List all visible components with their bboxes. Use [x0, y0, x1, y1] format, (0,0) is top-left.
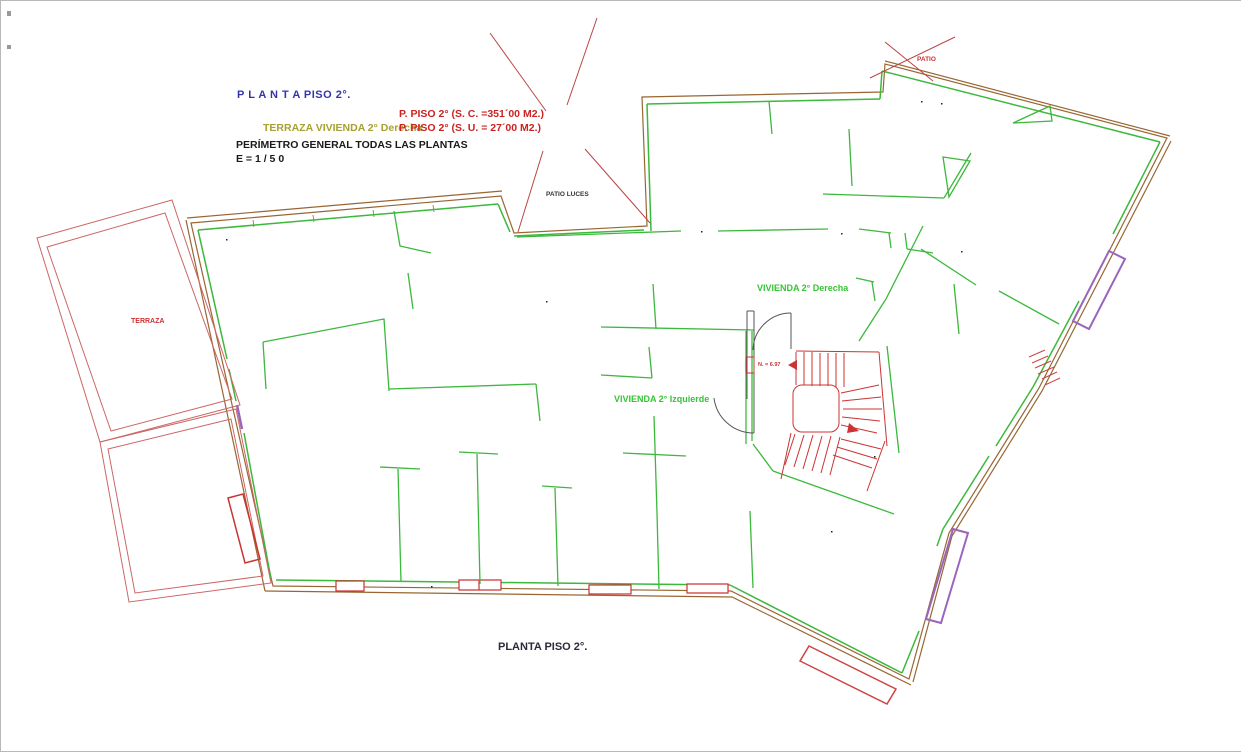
floor-plan-drawing — [1, 1, 1241, 751]
door-arc-upper — [753, 313, 791, 350]
patio-cross-lines — [870, 37, 955, 81]
stair-level-label: N. = 6.97 — [758, 363, 780, 369]
area-useful-note: P. PISO 2° (S. U. = 27´00 M2.) — [399, 123, 541, 134]
stair-well — [793, 385, 839, 432]
perimeter-note: PERÍMETRO GENERAL TODAS LAS PLANTAS — [236, 140, 468, 151]
vivienda-derecha-label: VIVIENDA 2° Derecha — [757, 284, 848, 293]
footer-label: PLANTA PISO 2°. — [498, 642, 587, 653]
interior-walls — [263, 101, 1059, 589]
terraza-label: TERRAZA — [131, 318, 164, 325]
bottom-right-balcony — [800, 646, 896, 704]
patio-luces-label: PATIO LUCES — [546, 192, 589, 199]
stair-direction-arrow — [847, 423, 859, 433]
stairs — [781, 351, 887, 491]
scan-artifact — [7, 11, 11, 16]
perimeter-outer — [186, 61, 1171, 685]
scan-artifact — [7, 45, 11, 49]
wall-ticks — [253, 205, 434, 227]
vivienda-izquierda-label: VIVIENDA 2° Izquierde — [614, 395, 709, 404]
scale-note: E = 1 / 5 0 — [236, 154, 284, 165]
floor-plan-canvas: P L A N T A PISO 2°. P. PISO 2° (S. C. =… — [0, 0, 1241, 752]
patio-label: PATIO — [917, 57, 936, 64]
plan-title: P L A N T A PISO 2°. — [237, 90, 351, 101]
area-constructed-note: P. PISO 2° (S. C. =351´00 M2.) — [399, 109, 544, 120]
point-marks — [226, 101, 963, 588]
door-arc-lower — [714, 398, 754, 433]
